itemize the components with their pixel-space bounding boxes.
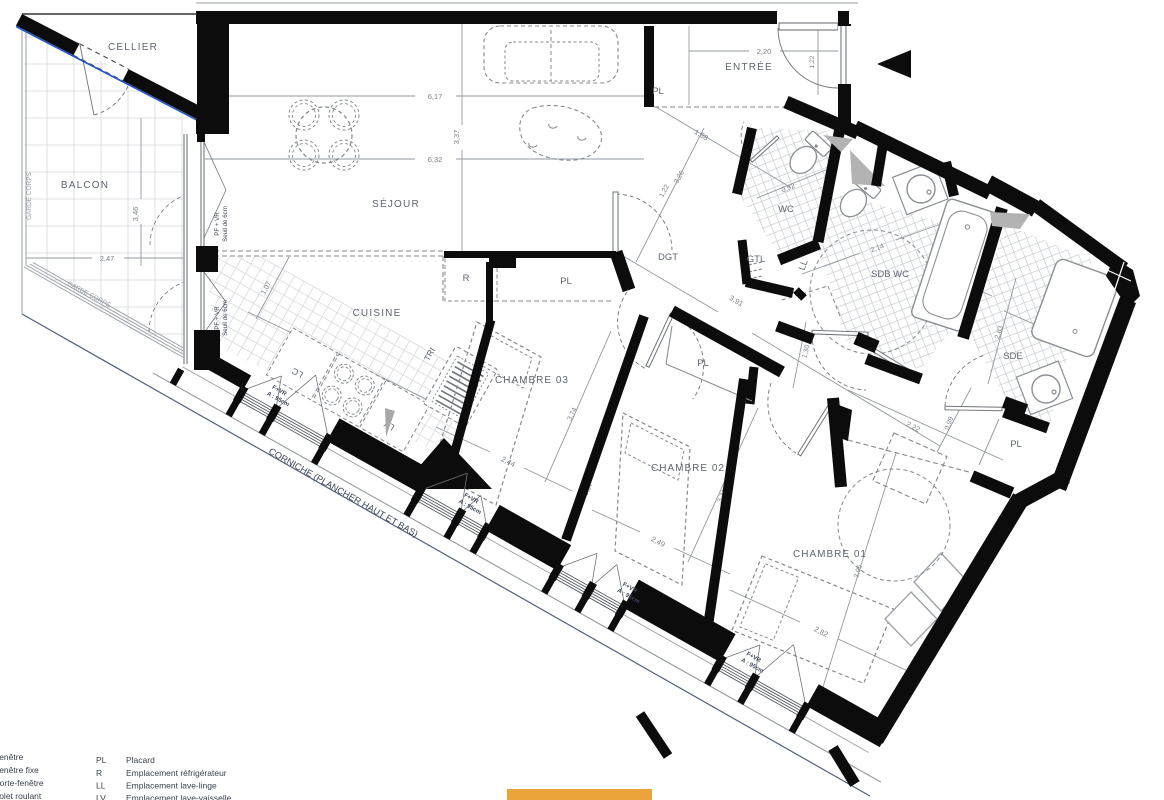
- svg-text:CHAMBRE 01: CHAMBRE 01: [793, 549, 867, 560]
- svg-text:6,17: 6,17: [428, 92, 443, 101]
- svg-text:Emplacement lave-vaisselle: Emplacement lave-vaisselle: [126, 793, 232, 800]
- svg-text:PL: PL: [697, 358, 709, 369]
- svg-text:Fenêtre fixe: Fenêtre fixe: [0, 765, 39, 775]
- svg-text:Seuil de 6cm: Seuil de 6cm: [222, 206, 229, 242]
- svg-text:DGT: DGT: [658, 252, 678, 263]
- svg-text:ENTRÉE: ENTRÉE: [725, 60, 773, 73]
- svg-text:6,32: 6,32: [428, 155, 443, 164]
- svg-text:GTL: GTL: [747, 254, 765, 265]
- svg-text:Porte-fenêtre: Porte-fenêtre: [0, 778, 44, 788]
- svg-text:CELLIER: CELLIER: [108, 42, 158, 53]
- svg-text:PF + VR: PF + VR: [214, 212, 221, 236]
- svg-text:LL: LL: [96, 781, 106, 791]
- svg-text:PL: PL: [560, 276, 572, 287]
- svg-text:WC: WC: [778, 204, 794, 215]
- svg-text:1,22: 1,22: [809, 55, 816, 68]
- svg-text:PL: PL: [96, 755, 107, 765]
- svg-text:Volet roulant: Volet roulant: [0, 791, 42, 800]
- svg-text:CUISINE: CUISINE: [353, 308, 402, 319]
- svg-text:3,46: 3,46: [131, 207, 140, 222]
- svg-text:PL: PL: [1010, 439, 1022, 450]
- svg-text:R: R: [96, 768, 102, 778]
- svg-text:Emplacement lave-linge: Emplacement lave-linge: [126, 781, 217, 791]
- svg-text:Emplacement réfrigérateur: Emplacement réfrigérateur: [126, 768, 227, 778]
- svg-text:SDB WC: SDB WC: [871, 269, 909, 280]
- svg-text:SÉJOUR: SÉJOUR: [372, 197, 420, 210]
- svg-text:SDE: SDE: [1003, 351, 1023, 362]
- svg-text:Seuil de 6cm: Seuil de 6cm: [222, 300, 229, 336]
- svg-text:CHAMBRE 02: CHAMBRE 02: [651, 463, 725, 474]
- svg-text:2,47: 2,47: [100, 254, 115, 263]
- svg-text:R: R: [463, 273, 470, 284]
- svg-text:Fenêtre: Fenêtre: [0, 752, 24, 762]
- svg-text:PL: PL: [652, 86, 664, 97]
- svg-text:2,20: 2,20: [757, 47, 772, 56]
- svg-text:GARDE CORPS: GARDE CORPS: [26, 171, 33, 220]
- svg-text:3,37: 3,37: [452, 130, 461, 145]
- svg-text:CHAMBRE 03: CHAMBRE 03: [495, 375, 569, 386]
- svg-text:LV: LV: [96, 793, 106, 800]
- svg-text:BALCON: BALCON: [61, 180, 109, 191]
- svg-text:PF + VR: PF + VR: [214, 306, 221, 330]
- svg-text:Placard: Placard: [126, 755, 155, 765]
